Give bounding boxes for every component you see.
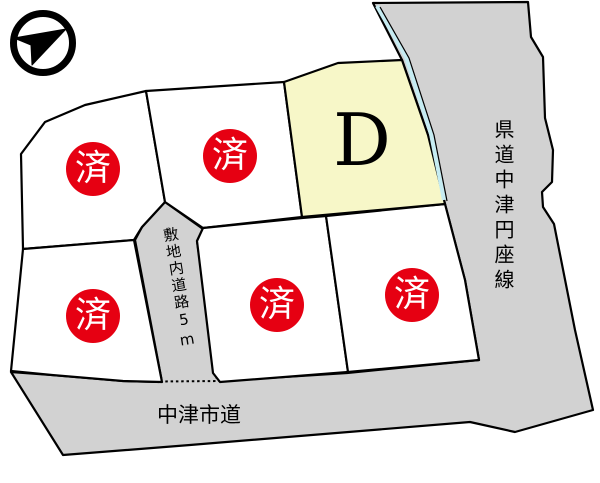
city-road-label: 中津市道 <box>157 399 241 429</box>
north-arrow-icon <box>14 14 73 73</box>
sold-badge: 済 <box>66 142 120 196</box>
sold-badge: 済 <box>66 289 120 343</box>
prefectural-road-label: 県道中津円座線 <box>491 119 514 294</box>
sold-badge: 済 <box>203 129 257 183</box>
lot-map: 県道中津円座線 敷地内道路5m 中津市道 D 済 済 済 済 済 <box>0 0 600 483</box>
sold-badge: 済 <box>250 278 304 332</box>
lot-d-label[interactable]: D <box>333 98 391 182</box>
sold-badge: 済 <box>385 268 439 322</box>
